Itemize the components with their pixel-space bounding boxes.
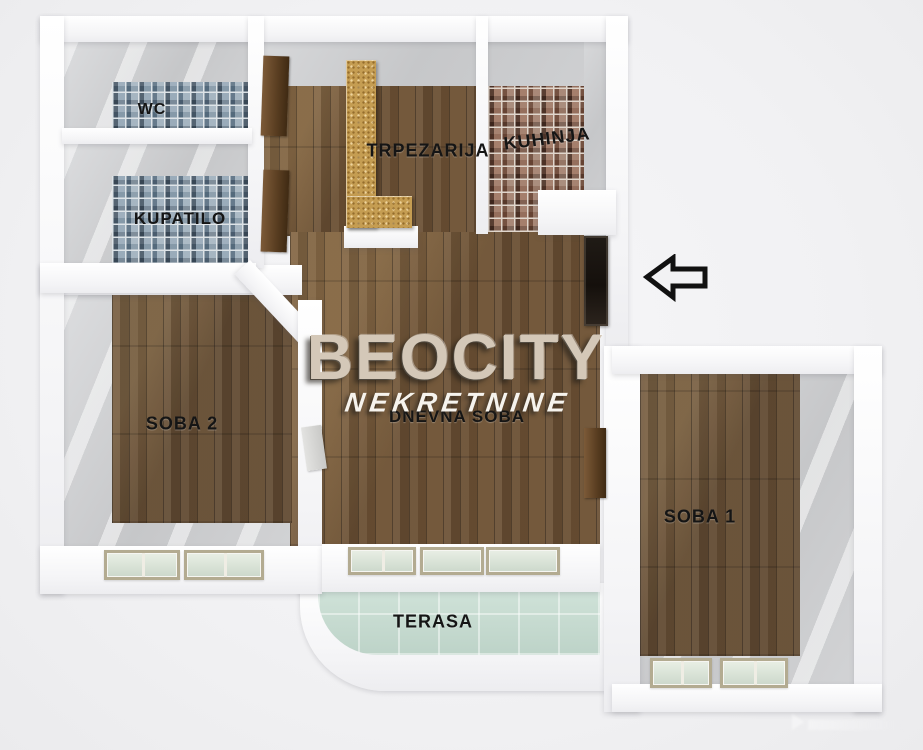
closet-door-upper (261, 56, 290, 137)
room-label-wc: WC (138, 101, 167, 119)
terrace-window-right (486, 547, 560, 575)
entrance-door (584, 236, 608, 326)
wall-outer-left (40, 16, 64, 594)
photo-watermark-logo-icon (792, 714, 804, 730)
window-mullion (224, 553, 227, 577)
watermark-subtitle: NEKRETNINE (343, 388, 573, 419)
wall-kitchen-divider (476, 16, 488, 234)
bar-counter-foot (346, 196, 412, 228)
room-soba2-floor (112, 293, 292, 523)
wall-soba1-left (604, 346, 640, 712)
room-label-soba1: SOBA 1 (664, 507, 736, 528)
terrace-window-middle (420, 547, 484, 575)
soba2-window-right (184, 550, 264, 580)
soba1-window-left (650, 658, 712, 688)
terrace-glass-door (348, 547, 416, 575)
watermark-brand: BEOCITY (307, 320, 605, 394)
wall-outer-top (40, 16, 628, 42)
room-label-kupatilo: KUPATILO (134, 209, 226, 229)
wall-soba1-top (612, 346, 882, 374)
soba1-window-right (720, 658, 788, 688)
wall-bath-bottom (40, 263, 256, 293)
window-mullion (681, 661, 684, 685)
entrance-arrow-icon (642, 254, 710, 302)
dining-kitchen-backwall (262, 40, 608, 90)
room-label-trpezarija: TRPEZARIJA (366, 141, 489, 162)
soba1-door (584, 428, 606, 498)
window-mullion (382, 550, 385, 572)
room-label-terasa: TERASA (393, 612, 473, 633)
wall-soba1-right (854, 346, 882, 712)
floor-plan-image: WC KUPATILO TRPEZARIJA KUHINJA SOBA 2 DN… (0, 0, 923, 750)
window-mullion (754, 661, 757, 685)
window-mullion (142, 553, 145, 577)
room-label-soba2: SOBA 2 (146, 414, 218, 435)
room-wc-floor-tiles (112, 82, 250, 132)
wall-soba2-bottom (40, 546, 322, 594)
wall-kitchen-peninsula (538, 190, 616, 235)
closet-door-lower (261, 170, 290, 253)
wall-outer-right-upper (606, 16, 628, 346)
photo-watermark (792, 714, 917, 736)
wall-soba1-bottom (612, 684, 882, 712)
wall-wc-kupatilo-divider (62, 128, 252, 144)
photo-watermark-text-blur (808, 720, 903, 730)
soba2-window-left (104, 550, 180, 580)
bar-cabinet-top (344, 226, 418, 248)
